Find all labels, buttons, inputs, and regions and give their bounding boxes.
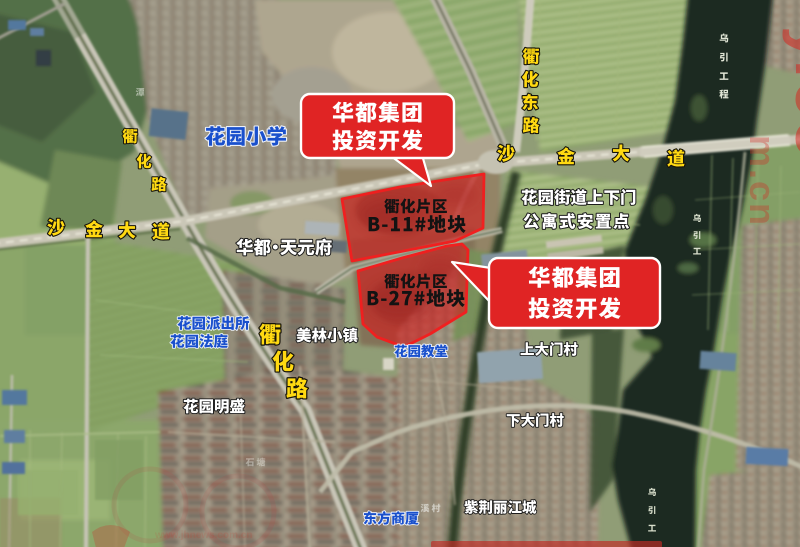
svg-text:y.co: y.co — [782, 26, 800, 161]
svg-text:m.cn: m.cn — [742, 135, 783, 227]
